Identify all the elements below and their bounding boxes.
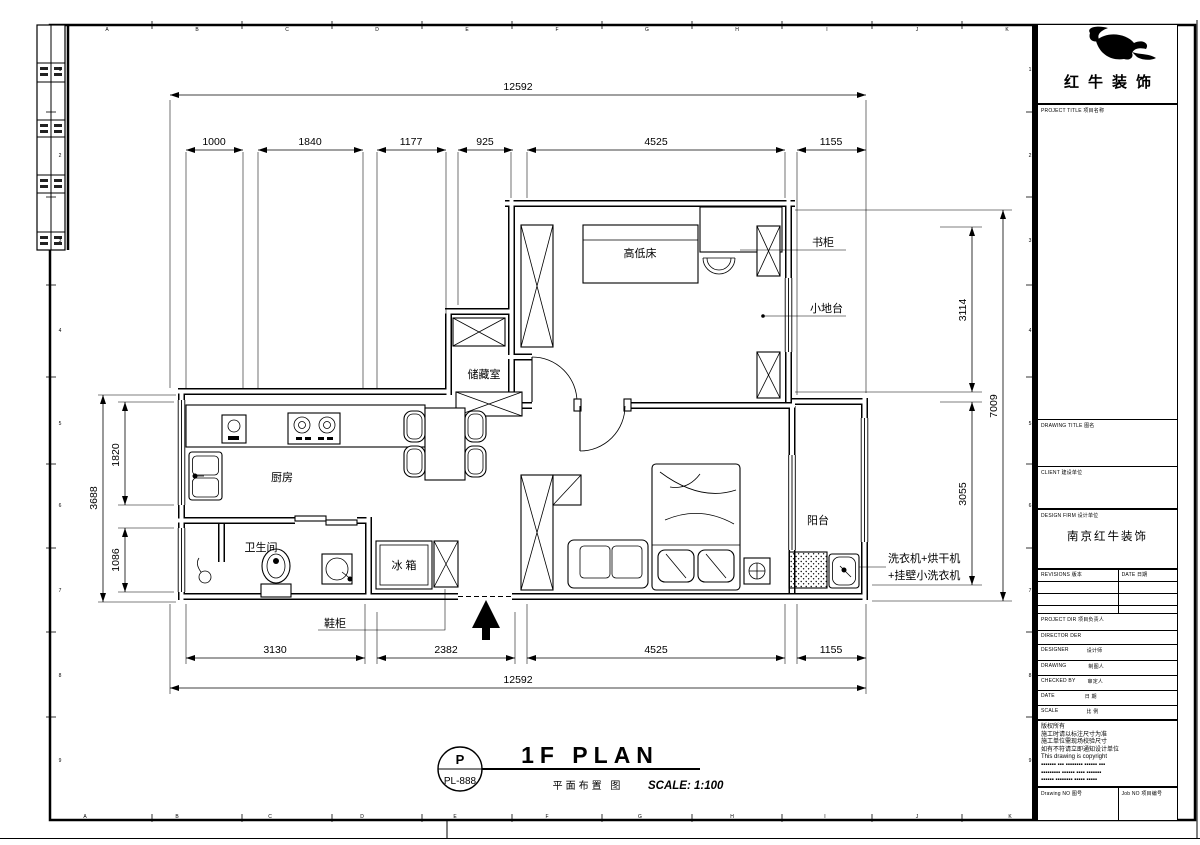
job-no-label: Job NO 项目编号 xyxy=(1119,788,1177,820)
dim: 1086 xyxy=(110,548,122,572)
notes-row: 版权所有 施工时请以标注尺寸为准 施工单位需现场校验尺寸 如有不符请立即通知设计… xyxy=(1038,721,1177,788)
svg-text:9: 9 xyxy=(59,758,62,764)
washer-dryer xyxy=(789,552,827,588)
design-firm-label: DESIGN FIRM 设计单位 xyxy=(1038,510,1177,519)
washbasin xyxy=(322,554,352,584)
logo-row: 红牛装饰 xyxy=(1038,25,1177,105)
shower-head xyxy=(199,571,211,583)
designer-label: DESIGNER xyxy=(1041,647,1069,654)
badge-letter: P xyxy=(456,752,465,767)
title-block: 红牛装饰 PROJECT TITLE 项目名称 DRAWING TITLE 图名… xyxy=(1032,25,1178,820)
svg-text:H: H xyxy=(735,27,739,33)
director-row: DIRECTOR DER xyxy=(1038,631,1177,645)
drawing-title-label: DRAWING TITLE 图名 xyxy=(1038,420,1177,429)
checked-by-label: CHECKED BY xyxy=(1041,678,1076,685)
drawing-row: DRAWING制图人 xyxy=(1038,661,1177,676)
dim-bottom-total: 12592 xyxy=(503,674,532,686)
balcony-fixtures xyxy=(789,552,886,588)
svg-text:K: K xyxy=(1005,27,1009,33)
bookcase-label: 书柜 xyxy=(812,236,834,249)
svg-text:2: 2 xyxy=(59,153,62,159)
shoe-cabinet-label: 鞋柜 xyxy=(324,616,346,630)
dim-top-total: 12592 xyxy=(503,81,532,93)
dining-table xyxy=(425,408,465,480)
fridge-label: 冰 箱 xyxy=(391,558,416,572)
svg-text:F: F xyxy=(545,814,548,820)
bathroom-slider-panel xyxy=(326,520,357,525)
drawing-label: DRAWING xyxy=(1041,663,1066,670)
svg-text:6: 6 xyxy=(59,503,62,509)
dim: 1820 xyxy=(110,443,122,467)
checked-by-cn: 审定人 xyxy=(1088,678,1104,685)
storage-label: 储藏室 xyxy=(468,367,501,381)
bedroom1-furniture xyxy=(521,207,782,398)
badge-code: PL-888 xyxy=(444,776,477,787)
dim: 1177 xyxy=(400,136,423,148)
drawing-title-bar: P PL-888 1F PLAN 平面布置 图 SCALE: 1:100 xyxy=(438,742,724,792)
checked-by-row: CHECKED BY审定人 xyxy=(1038,676,1177,691)
kitchen-label: 厨房 xyxy=(271,471,293,484)
floor-plan-svg: ABCDEFGHIJK ABCDEFGHIJK 123456789 123456… xyxy=(0,0,1200,845)
svg-text:A: A xyxy=(105,27,109,33)
client-label: CLIENT 建设单位 xyxy=(1038,467,1177,476)
director-label: DIRECTOR DER xyxy=(1038,631,1177,639)
revisions-label: REVISIONS 版本 xyxy=(1038,570,1119,581)
date-label: DATE xyxy=(1041,693,1055,700)
dim-right-total: 7009 xyxy=(988,394,1000,418)
washer-label-line1: 洗衣机+烘干机 xyxy=(888,551,960,565)
grid-letters-top: ABCDEFGHIJK xyxy=(105,27,1009,33)
date-cn: 日 期 xyxy=(1085,693,1097,700)
plan-scale: SCALE: 1:100 xyxy=(648,780,724,792)
dim: 1155 xyxy=(820,644,843,656)
svg-text:D: D xyxy=(375,27,379,33)
svg-text:7: 7 xyxy=(59,588,62,594)
dim: 925 xyxy=(476,136,494,148)
bedroom1-door-swing xyxy=(532,357,577,402)
client-row: CLIENT 建设单位 xyxy=(1038,467,1177,510)
svg-text:I: I xyxy=(826,27,827,33)
desk-chair xyxy=(703,258,735,274)
sheet-frame xyxy=(0,20,1200,839)
project-title-row: PROJECT TITLE 项目名称 xyxy=(1038,105,1177,420)
svg-text:C: C xyxy=(285,27,289,33)
svg-text:8: 8 xyxy=(59,673,62,679)
bedroom2-door-swing xyxy=(580,406,625,451)
drawing-no-label: Drawing NO 图号 xyxy=(1038,788,1119,820)
scale-cn: 比 例 xyxy=(1086,708,1098,715)
svg-text:4: 4 xyxy=(59,328,62,334)
scale-row: SCALE比 例 xyxy=(1038,706,1177,721)
dim: 3130 xyxy=(263,644,287,656)
designer-row: DESIGNER设计师 xyxy=(1038,645,1177,661)
platform-label: 小地台 xyxy=(810,301,843,315)
revision-row xyxy=(1038,606,1177,614)
svg-text:3: 3 xyxy=(59,238,62,244)
revision-row xyxy=(1038,594,1177,606)
svg-text:1: 1 xyxy=(59,67,62,73)
north-arrow-icon xyxy=(472,600,500,640)
washer-label-line2: +挂壁小洗衣机 xyxy=(888,568,960,582)
svg-text:J: J xyxy=(916,27,919,33)
drawing-cn: 制图人 xyxy=(1088,663,1104,670)
bull-logo-icon xyxy=(1038,25,1177,69)
balcony-label: 阳台 xyxy=(807,513,829,527)
svg-text:H: H xyxy=(730,814,734,820)
dim: 4525 xyxy=(644,644,668,656)
dimensions: 12592 1000 1840 1177 925 4525 1155 3130 … xyxy=(88,81,1012,694)
project-dir-label: PROJECT DIR 项目负责人 xyxy=(1038,614,1177,623)
svg-text:B: B xyxy=(195,27,199,33)
drawing-no-row: Drawing NO 图号 Job NO 项目编号 xyxy=(1038,788,1177,820)
bedroom2-furniture xyxy=(521,464,770,590)
date-row: DATE日 期 xyxy=(1038,691,1177,706)
project-dir-row: PROJECT DIR 项目负责人 xyxy=(1038,614,1177,631)
svg-text:G: G xyxy=(645,27,649,33)
svg-text:G: G xyxy=(638,814,642,820)
dim: 3114 xyxy=(957,299,969,322)
dim: 2382 xyxy=(434,644,458,656)
svg-text:F: F xyxy=(555,27,558,33)
dim-left-total: 3688 xyxy=(88,486,100,510)
svg-text:C: C xyxy=(268,814,272,820)
plan-title: 1F PLAN xyxy=(521,742,659,768)
fold-strip xyxy=(37,25,65,250)
bathroom-slider-panel xyxy=(295,516,326,521)
bathroom-label: 卫生间 xyxy=(245,540,278,554)
copyright-notes: 版权所有 施工时请以标注尺寸为准 施工单位需现场校验尺寸 如有不符请立即通知设计… xyxy=(1038,721,1177,785)
revision-row xyxy=(1038,582,1177,594)
toilet-tank xyxy=(261,584,291,597)
designer-cn: 设计师 xyxy=(1087,647,1103,654)
logo-text: 红牛装饰 xyxy=(1038,71,1177,92)
svg-text:5: 5 xyxy=(59,421,62,427)
svg-text:D: D xyxy=(360,814,364,820)
dim: 3055 xyxy=(957,482,969,506)
design-firm-row: DESIGN FIRM 设计单位 南京红牛装饰 xyxy=(1038,510,1177,570)
dim: 1000 xyxy=(202,136,226,148)
drawing-sheet: { "sheet": { "grid_letters": ["A","B","C… xyxy=(0,0,1200,845)
project-title-label: PROJECT TITLE 项目名称 xyxy=(1038,105,1177,114)
bunk-bed-label: 高低床 xyxy=(624,246,657,260)
dim: 1155 xyxy=(820,136,843,148)
rev-date-label: DATE 日期 xyxy=(1119,570,1177,581)
dim: 1840 xyxy=(298,136,322,148)
scale-label: SCALE xyxy=(1041,708,1058,715)
svg-text:I: I xyxy=(824,814,825,820)
plan-title-cn: 平面布置 图 xyxy=(553,780,624,792)
dim: 4525 xyxy=(644,136,668,148)
kitchen-furniture xyxy=(186,405,425,500)
drawing-title-row: DRAWING TITLE 图名 xyxy=(1038,420,1177,467)
svg-text:E: E xyxy=(465,27,469,33)
revisions-header-row: REVISIONS 版本 DATE 日期 xyxy=(1038,570,1177,582)
design-firm-value: 南京红牛装饰 xyxy=(1038,528,1177,544)
